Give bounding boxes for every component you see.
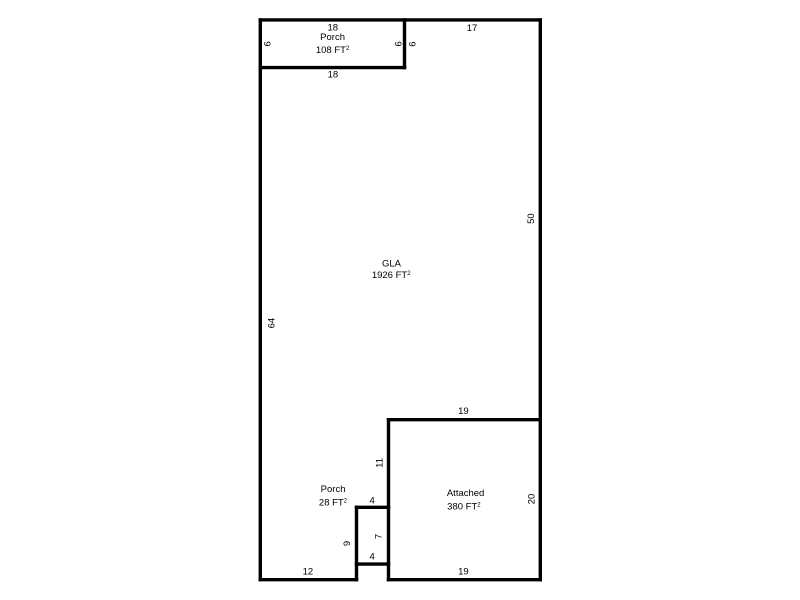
svg-text:Porch: Porch xyxy=(321,484,346,495)
svg-text:19: 19 xyxy=(458,567,469,578)
svg-text:Porch: Porch xyxy=(320,32,345,43)
svg-text:17: 17 xyxy=(467,23,478,34)
svg-text:12: 12 xyxy=(303,567,314,578)
svg-text:50: 50 xyxy=(526,213,537,224)
svg-text:7: 7 xyxy=(374,534,385,539)
svg-text:Attached: Attached xyxy=(447,488,485,499)
svg-text:19: 19 xyxy=(458,406,469,417)
svg-text:GLA: GLA xyxy=(382,259,402,270)
svg-text:380 FT2: 380 FT2 xyxy=(447,501,481,512)
svg-text:4: 4 xyxy=(369,495,374,506)
svg-text:6: 6 xyxy=(408,41,419,46)
svg-text:9: 9 xyxy=(342,541,353,546)
svg-text:28 FT2: 28 FT2 xyxy=(319,497,348,508)
svg-text:1926 FT2: 1926 FT2 xyxy=(372,270,411,281)
svg-text:20: 20 xyxy=(526,494,537,505)
svg-text:11: 11 xyxy=(375,458,386,468)
svg-text:108 FT2: 108 FT2 xyxy=(316,45,350,56)
svg-text:4: 4 xyxy=(369,551,374,562)
svg-text:6: 6 xyxy=(263,41,274,46)
svg-text:6: 6 xyxy=(394,41,405,46)
svg-text:18: 18 xyxy=(328,70,339,81)
svg-text:64: 64 xyxy=(267,318,278,329)
